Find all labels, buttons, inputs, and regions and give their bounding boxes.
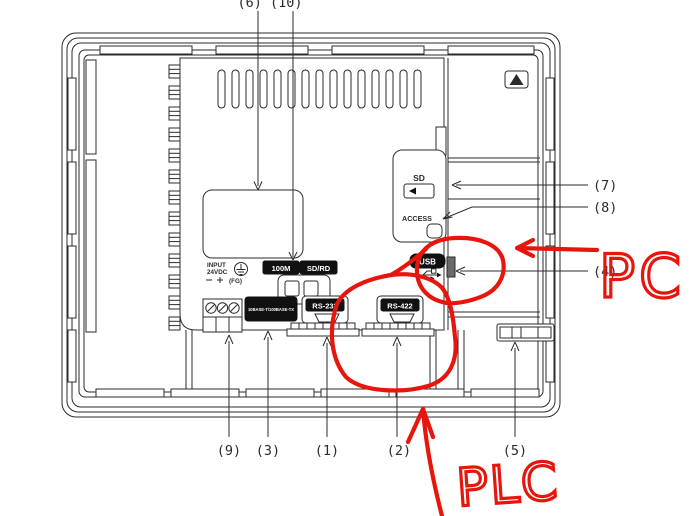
rs422-port: RS-422: [362, 296, 434, 336]
rating-plate: [203, 190, 303, 258]
pc-annotation-text: PC: [599, 242, 685, 312]
callout-top: (6) (10): [237, 0, 302, 11]
ethernet-label: 10BASE-T/100BASE-TX: [248, 307, 295, 312]
power-terminal: INPUT 24VDC (FG): [203, 262, 248, 332]
mounting-clips: [169, 65, 180, 330]
rear-panel-diagram: 100M SD/RD INPUT 24VDC (FG) 10BASE-T/100…: [0, 0, 697, 516]
sd-label: SD: [413, 173, 425, 183]
callout-9: (9): [217, 443, 241, 459]
led-sdrd-label: SD/RD: [307, 264, 331, 273]
plc-annotation-text: PLC: [455, 452, 562, 516]
extension-connector: [497, 324, 554, 341]
callout-3: (3): [256, 443, 280, 459]
fg-label: (FG): [229, 278, 242, 285]
led-sdrd: [304, 281, 318, 296]
terminal-screws: [206, 303, 239, 313]
plc-arrow-annotation: [408, 409, 442, 516]
usb-connector: [447, 257, 455, 277]
left-rail-upper: [86, 60, 96, 154]
sd-card-section: SD ACCESS: [393, 127, 446, 242]
ethernet-port: 10BASE-T/100BASE-TX: [245, 297, 297, 321]
warning-icon: [505, 71, 528, 88]
red-annotations: PC PLC: [332, 238, 685, 516]
bezel-slots: [68, 46, 554, 397]
rs422-label: RS-422: [387, 302, 412, 311]
manual-figure-rear-view: 100M SD/RD INPUT 24VDC (FG) 10BASE-T/100…: [0, 0, 697, 516]
callout-8: (8): [593, 200, 617, 216]
device-outline: [62, 33, 560, 417]
access-label: ACCESS: [402, 214, 432, 223]
rs232-port: RS-232: [287, 296, 359, 336]
callout-7: (7): [593, 178, 617, 194]
power-input-label: INPUT: [207, 262, 226, 269]
power-voltage-label: 24VDC: [207, 269, 228, 276]
left-rail-lower: [86, 160, 96, 332]
led-100m-label: 100M: [272, 264, 291, 273]
earth-ground-icon: [235, 263, 248, 276]
pc-arrow-annotation: [517, 240, 597, 256]
polarity-marks: [206, 277, 223, 283]
callout-2: (2): [387, 443, 411, 459]
callout-1: (1): [315, 443, 339, 459]
usb-label: USB: [419, 258, 436, 267]
led-100m: [285, 281, 299, 296]
vent-slots: [218, 70, 421, 108]
